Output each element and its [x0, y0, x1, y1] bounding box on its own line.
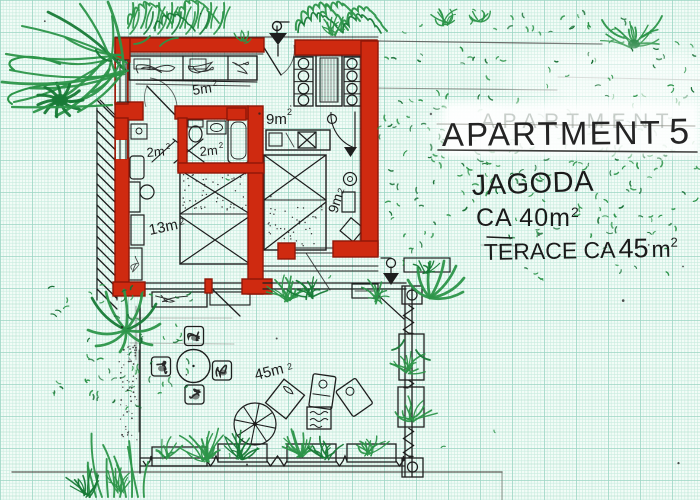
svg-text:2m: 2m [146, 143, 165, 160]
svg-text:JAGODA: JAGODA [471, 166, 594, 202]
svg-text:5m: 5m [191, 79, 212, 98]
svg-text:9m: 9m [266, 111, 287, 128]
svg-text:2: 2 [287, 107, 292, 117]
svg-text:CA 40m2: CA 40m2 [476, 204, 580, 232]
svg-text:2m: 2m [199, 142, 218, 159]
svg-text:APARTMENT5: APARTMENT5 [442, 110, 692, 154]
